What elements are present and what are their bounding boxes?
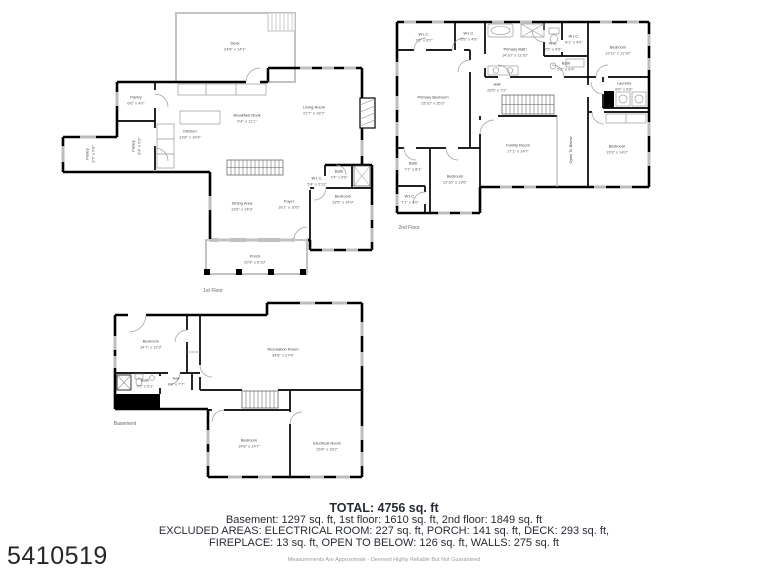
summary-total: TOTAL: 4756 sq. ft [0, 501, 768, 515]
floor-plans-drawing [0, 0, 768, 576]
floor-plan-sheet: Deck24'8" x 14'1" Pantry6'6" x 4'0" Pant… [0, 0, 768, 576]
first-floor-door-arcs [155, 68, 346, 240]
first-floor-plan [63, 13, 375, 275]
room-label-living-room: Living Room21'7" x 18'7" [303, 104, 325, 115]
room-label-bedroom-bsmt: Bedroom14'8" x 14'7" [238, 437, 260, 448]
caption-first-floor: 1st Floor [203, 288, 222, 294]
room-label-wic-2f-4: W.I.C.7'1" x 3'0" [401, 193, 419, 204]
room-label-deck: Deck24'8" x 14'1" [224, 40, 246, 51]
area-summary: TOTAL: 4756 sq. ft Basement: 1297 sq. ft… [0, 501, 768, 549]
room-label-bedroom-2f-bl: Bedroom12'10" x 13'6" [443, 173, 467, 184]
unexcavated-area [115, 394, 160, 409]
room-label-bedroom-bsmt-tl: Bedroom14'7" x 12'3" [140, 338, 162, 349]
room-label-bath-1f: Bath7'4" x 5'6" [330, 168, 348, 179]
room-label-primary-bedroom: Primary Bedroom15'10" x 26'3" [417, 94, 448, 105]
room-label-bedroom-2f-br: Bedroom13'9" x 14'2" [606, 143, 628, 154]
stairs-first-floor [227, 160, 283, 175]
fireplace [360, 98, 375, 128]
caption-second-floor: 2nd Floor [398, 225, 419, 231]
room-label-wic-1f: W.I.C.5'4" x 2'11" [307, 175, 326, 186]
room-label-pantry-2: Pantry8'4" x 5'0" [130, 137, 141, 155]
room-label-bedroom-2f-tr: Bedroom12'11" x 11'10" [605, 44, 631, 55]
caption-basement: Basement [114, 421, 137, 427]
stairs-basement [242, 391, 278, 408]
summary-excluded-2: FIREPLACE: 13 sq. ft, OPEN TO BELOW: 126… [0, 538, 768, 549]
room-label-foyer: Foyer16'1" x 10'6" [278, 198, 300, 209]
disclaimer-text: Measurements Are Approximate - Deemed Hi… [0, 557, 768, 563]
vanity [488, 66, 518, 75]
chimney [604, 91, 614, 108]
room-label-bath-2f-bl: Bath7'1" x 8'1" [404, 160, 422, 171]
room-label-bedroom-1f: Bedroom13'5" x 14'9" [332, 193, 354, 204]
stairs-second-floor [502, 95, 554, 114]
room-label-recreation-room: Recreation Room34'8" x 27'4" [267, 346, 298, 357]
kitchen-fixtures [157, 84, 266, 168]
room-label-bath-bsmt: Bath7'0" x 5'1" [136, 377, 154, 388]
room-label-wc: W.C.3'5" x 4'6" [544, 40, 562, 51]
dryer [632, 92, 646, 106]
room-label-dining-area: Dining Area13'6" x 14'3" [231, 200, 253, 211]
room-label-primary-bath: Primary Bath14'10" x 11'10" [502, 46, 528, 57]
washer [616, 92, 630, 106]
room-label-wic-2f-1: W.I.C.7'6" x 6'2" [415, 31, 433, 42]
room-label-breakfast-nook: Breakfast Nook9'4" x 11'1" [233, 112, 260, 123]
room-label-open-to-below: Open To Below [568, 136, 574, 163]
room-label-pantry-3: Pantry9'7" x 5'8" [84, 145, 95, 163]
room-label-wic-2f-2: W.I.C.6'5" x 4'6" [460, 30, 478, 41]
room-label-hall-2f: Hall28'5" x 7'2" [487, 81, 507, 92]
room-label-kitchen: Kitchen13'8" x 16'4" [179, 128, 201, 139]
room-label-hall-bsmt: Hall7'9" x 7'7" [167, 375, 185, 386]
room-label-pantry-1: Pantry6'6" x 4'0" [127, 94, 145, 105]
room-label-bath-2f-top: Bath5'2" x 9'4" [557, 60, 575, 71]
room-label-wic-2f-3: W.I.C.8'1" x 4'0" [565, 33, 583, 44]
room-label-porch: Porch20'9" x 6'10" [244, 253, 266, 264]
toilet [549, 28, 559, 34]
room-label-laundry: Laundry8'0" x 6'8" [615, 80, 633, 91]
room-label-family-room: Family Room17'1" x 14'7" [506, 142, 530, 153]
room-label-electrical-room: Electrical Room15'8" x 18'2" [313, 440, 341, 451]
